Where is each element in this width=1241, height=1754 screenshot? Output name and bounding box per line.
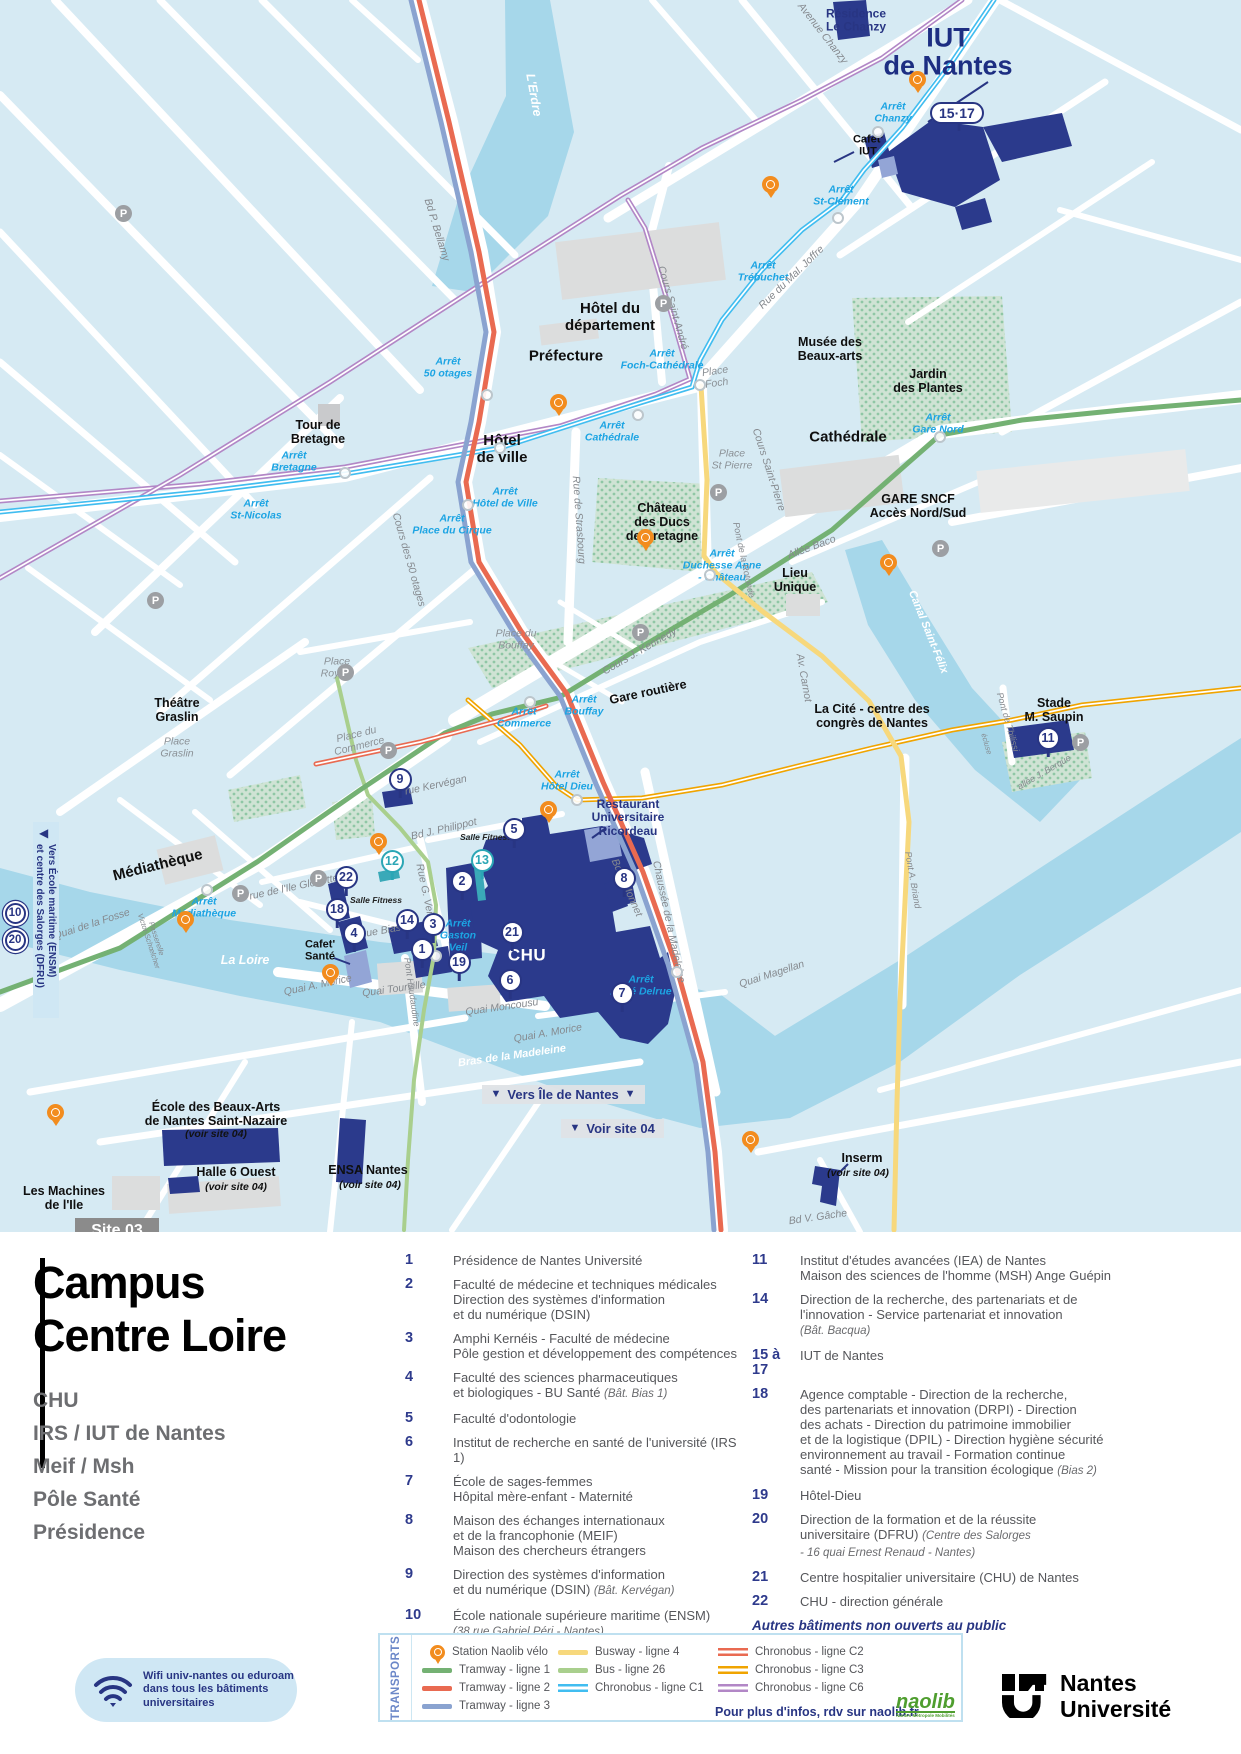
legend-item-6: 6Institut de recherche en santé de l'uni…: [405, 1435, 750, 1465]
building-marker-5: 5: [503, 818, 526, 841]
line-swatch: [422, 1668, 452, 1673]
legend-item-text: Direction de la recherche, des partenari…: [800, 1292, 1078, 1339]
triangle-icon: ▼: [491, 1088, 502, 1100]
transit-stop-icon: [339, 467, 351, 479]
line-swatch: [558, 1684, 588, 1692]
wifi-icon: [93, 1673, 133, 1707]
legend-item-22: 22CHU - direction générale: [752, 1594, 1222, 1609]
line-swatch: [718, 1666, 748, 1674]
legend-item-number: 4: [405, 1370, 453, 1402]
triangle-icon: ◀: [39, 826, 48, 840]
line-swatch: [718, 1648, 748, 1656]
building-marker-9: 9: [389, 768, 412, 791]
building-marker-14: 14: [396, 909, 419, 932]
legend-item-number: 2: [405, 1277, 453, 1322]
legend-item-21: 21Centre hospitalier universitaire (CHU)…: [752, 1570, 1222, 1585]
legend-item-text: École de sages-femmesHôpital mère-enfant…: [453, 1474, 633, 1504]
legend-item-number: 8: [405, 1513, 453, 1558]
line-swatch: [558, 1668, 588, 1673]
transport-legend-tramway-ligne-3: Tramway - ligne 3: [422, 1699, 550, 1713]
legend-item-number: 3: [405, 1331, 453, 1361]
parking-icon: P: [1072, 734, 1089, 751]
wifi-note-text: Wifi univ-nantes ou eduroam dans tous le…: [143, 1670, 294, 1711]
legend-item-text: Direction de la formation et de la réuss…: [800, 1512, 1036, 1561]
legend-column-2: 11Institut d'études avancées (IEA) de Na…: [752, 1253, 1222, 1650]
legend-item-number: 21: [752, 1570, 800, 1585]
transports-title: TRANSPORTS: [381, 1635, 412, 1720]
transport-legend-bus-ligne-26: Bus - ligne 26: [558, 1663, 665, 1677]
map-base-art: [0, 0, 1241, 1232]
transit-stop-icon: [704, 569, 716, 581]
building-marker-11: 11: [1037, 727, 1060, 750]
transit-stop-icon: [494, 442, 506, 454]
transport-legend-chronobus-ligne-c1: Chronobus - ligne C1: [558, 1681, 704, 1695]
building-marker-20: 20: [5, 930, 26, 951]
building-marker-4: 4: [343, 922, 366, 945]
transport-legend-chronobus-ligne-c3: Chronobus - ligne C3: [718, 1663, 864, 1677]
transit-stop-icon: [832, 212, 844, 224]
transit-stop-icon: [201, 884, 213, 896]
campus-map-page: { "site_badge": "Site 03", "title": {"li…: [0, 0, 1241, 1754]
wifi-note: Wifi univ-nantes ou eduroam dans tous le…: [75, 1658, 297, 1722]
legend-item-7: 7École de sages-femmesHôpital mère-enfan…: [405, 1474, 750, 1504]
legend-item-number: 19: [752, 1488, 800, 1503]
legend-item-text: Faculté d'odontologie: [453, 1411, 576, 1426]
legend-item-number: 20: [752, 1512, 800, 1561]
triangle-icon: ▼: [570, 1122, 581, 1134]
transport-legend-chronobus-ligne-c6: Chronobus - ligne C6: [718, 1681, 864, 1695]
building-marker-12: 12: [381, 850, 404, 873]
nantes-universite-logo: Nantes Université: [1002, 1670, 1171, 1722]
legend-item-text: Amphi Kernéis - Faculté de médecinePôle …: [453, 1331, 737, 1361]
legend-column-1: 1Présidence de Nantes Université2Faculté…: [405, 1253, 750, 1649]
parking-icon: P: [232, 885, 249, 902]
legend-item-18: 18Agence comptable - Direction de la rec…: [752, 1387, 1222, 1479]
legend-item-text: Faculté des sciences pharmaceutiqueset b…: [453, 1370, 678, 1402]
transit-stop-icon: [934, 431, 946, 443]
triangle-icon: ▼: [625, 1088, 636, 1100]
building-marker-18: 18: [326, 898, 349, 921]
legend-item-19: 19Hôtel-Dieu: [752, 1488, 1222, 1503]
legend-item-text: Institut de recherche en santé de l'univ…: [453, 1435, 750, 1465]
banner-vers-ecole-maritime: ◀ Vers École maritime (ENSM) et centre d…: [33, 822, 59, 1018]
title-block: CampusCentre Loire CHUIRS / IUT de Nante…: [33, 1256, 286, 1549]
transports-legend: TRANSPORTS Station Naolib véloTramway - …: [378, 1633, 963, 1722]
banner-vers-ecole-maritime-label: Vers École maritime (ENSM) et centre des…: [33, 844, 57, 1014]
building-marker-7: 7: [611, 982, 634, 1005]
building-marker-8: 8: [613, 867, 636, 890]
parking-icon: P: [710, 484, 727, 501]
parking-icon: P: [932, 540, 949, 557]
legend-item-text: Présidence de Nantes Université: [453, 1253, 642, 1268]
parking-icon: P: [380, 742, 397, 759]
legend-item-text: CHU - direction générale: [800, 1594, 943, 1609]
naolib-logo: naolib Nantes Métropole Mobilités: [896, 1693, 955, 1718]
parking-icon: P: [632, 624, 649, 641]
building-marker-19: 19: [448, 951, 471, 974]
legend-item-9: 9Direction des systèmes d'informationet …: [405, 1567, 750, 1599]
legend-item-15à17: 15 à 17IUT de Nantes: [752, 1348, 1222, 1378]
legend-item-number: 1: [405, 1253, 453, 1268]
legend-item-number: 14: [752, 1292, 800, 1339]
campus-subtitle-pr-sidence: Présidence: [33, 1516, 286, 1549]
banner-vers-le-de-nantes: ▼Vers Île de Nantes▼: [482, 1085, 645, 1104]
naolib-station-icon: [47, 1104, 64, 1121]
transit-stop-icon: [671, 966, 683, 978]
transit-stop-icon: [872, 126, 884, 138]
nantes-universite-glyph: [1002, 1674, 1048, 1718]
transit-stop-icon: [632, 409, 644, 421]
legend-item-2: 2Faculté de médecine et techniques médic…: [405, 1277, 750, 1322]
campus-subtitle-chu: CHU: [33, 1384, 286, 1417]
transport-legend-tramway-ligne-1: Tramway - ligne 1: [422, 1663, 550, 1677]
transit-stop-icon: [481, 389, 493, 401]
transit-stop-icon: [571, 794, 583, 806]
legend-item-3: 3Amphi Kernéis - Faculté de médecinePôle…: [405, 1331, 750, 1361]
legend-item-text: Faculté de médecine et techniques médica…: [453, 1277, 717, 1322]
building-marker-2: 2: [451, 870, 474, 893]
legend-item-number: 18: [752, 1387, 800, 1479]
map-canvas: IUT de NantesRésidence Le ChanzyAvenue C…: [0, 0, 1241, 1232]
naolib-station-icon: [177, 911, 194, 928]
campus-subtitle-p-le-sant: Pôle Santé: [33, 1483, 286, 1516]
legend-item-number: 15 à 17: [752, 1348, 800, 1378]
parking-icon: P: [337, 664, 354, 681]
banner-voir-site-04: ▼Voir site 04: [561, 1119, 664, 1138]
legend-note-title: Autres bâtiments non ouverts au public: [752, 1618, 1222, 1633]
line-swatch: [718, 1684, 748, 1692]
transit-stop-icon: [694, 379, 706, 391]
legend-item-5: 5Faculté d'odontologie: [405, 1411, 750, 1426]
line-swatch: [422, 1704, 452, 1709]
nantes-universite-name: Nantes Université: [1060, 1670, 1171, 1722]
naolib-station-icon: [430, 1645, 445, 1660]
legend-item-number: 5: [405, 1411, 453, 1426]
building-marker-13: 13: [471, 849, 494, 872]
legend-item-20: 20Direction de la formation et de la réu…: [752, 1512, 1222, 1561]
building-marker-15-17: 15·17: [930, 102, 984, 124]
legend-item-number: 7: [405, 1474, 453, 1504]
legend-item-number: 22: [752, 1594, 800, 1609]
transport-legend-chronobus-ligne-c2: Chronobus - ligne C2: [718, 1645, 864, 1659]
naolib-station-icon: [880, 554, 897, 571]
naolib-station-icon: [550, 394, 567, 411]
parking-icon: P: [115, 205, 132, 222]
transport-legend-tramway-ligne-2: Tramway - ligne 2: [422, 1681, 550, 1695]
naolib-station-icon: [909, 71, 926, 88]
legend-item-text: Direction des systèmes d'informationet d…: [453, 1567, 674, 1599]
naolib-station-icon: [637, 529, 654, 546]
parking-icon: P: [147, 592, 164, 609]
legend-panel: CampusCentre Loire CHUIRS / IUT de Nante…: [0, 1232, 1241, 1754]
naolib-station-icon: [370, 833, 387, 850]
parking-icon: P: [655, 295, 672, 312]
legend-item-14: 14Direction de la recherche, des partena…: [752, 1292, 1222, 1339]
parking-icon: P: [310, 870, 327, 887]
naolib-station-icon: [540, 801, 557, 818]
campus-subtitle-list: CHUIRS / IUT de NantesMeif / MshPôle San…: [33, 1384, 286, 1549]
transport-legend-busway-ligne-4: Busway - ligne 4: [558, 1645, 679, 1659]
building-marker-22: 22: [335, 866, 358, 889]
legend-item-11: 11Institut d'études avancées (IEA) de Na…: [752, 1253, 1222, 1283]
legend-item-8: 8Maison des échanges internationauxet de…: [405, 1513, 750, 1558]
building-marker-21: 21: [501, 921, 524, 944]
transports-info: Pour plus d'infos, rdv sur naolib.fr: [715, 1705, 919, 1719]
legend-item-number: 6: [405, 1435, 453, 1465]
building-marker-6: 6: [499, 969, 522, 992]
transport-legend-station-naolib-v-lo: Station Naolib vélo: [422, 1645, 548, 1659]
building-marker-10: 10: [5, 903, 26, 924]
building-marker-1: 1: [411, 938, 434, 961]
naolib-station-icon: [322, 964, 339, 981]
transit-stop-icon: [524, 696, 536, 708]
legend-item-4: 4Faculté des sciences pharmaceutiqueset …: [405, 1370, 750, 1402]
legend-item-text: Maison des échanges internationauxet de …: [453, 1513, 665, 1558]
legend-item-text: IUT de Nantes: [800, 1348, 884, 1378]
naolib-station-icon: [742, 1131, 759, 1148]
legend-item-text: Centre hospitalier universitaire (CHU) d…: [800, 1570, 1079, 1585]
legend-item-1: 1Présidence de Nantes Université: [405, 1253, 750, 1268]
naolib-station-icon: [762, 176, 779, 193]
transit-stop-icon: [462, 499, 474, 511]
campus-subtitle-meif-msh: Meif / Msh: [33, 1450, 286, 1483]
legend-item-text: Institut d'études avancées (IEA) de Nant…: [800, 1253, 1111, 1283]
campus-subtitle-irs-iut-de-nantes: IRS / IUT de Nantes: [33, 1417, 286, 1450]
line-swatch: [558, 1650, 588, 1655]
legend-item-number: 9: [405, 1567, 453, 1599]
building-marker-3: 3: [422, 913, 445, 936]
legend-item-text: Agence comptable - Direction de la reche…: [800, 1387, 1103, 1479]
line-swatch: [422, 1686, 452, 1691]
legend-item-number: 11: [752, 1253, 800, 1283]
page-title: CampusCentre Loire: [33, 1256, 286, 1362]
legend-item-text: Hôtel-Dieu: [800, 1488, 861, 1503]
